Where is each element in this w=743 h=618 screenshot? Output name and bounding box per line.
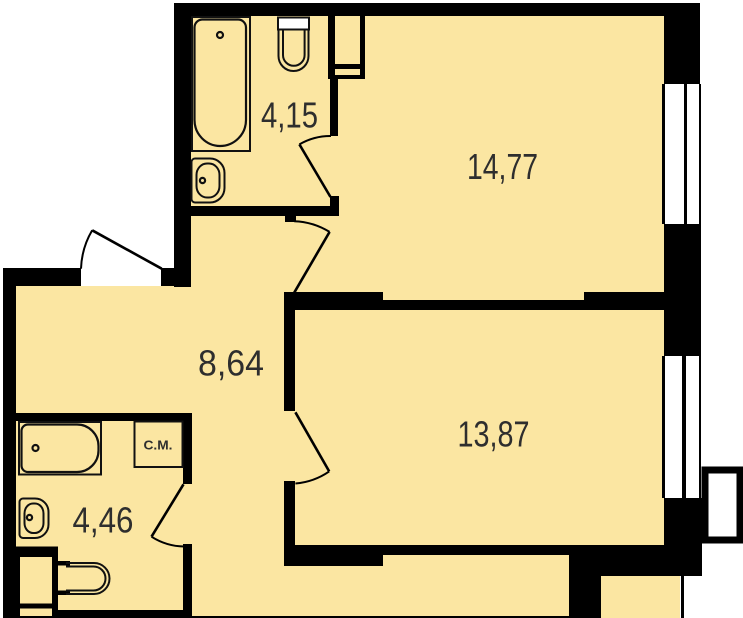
svg-text:13,87: 13,87 (458, 414, 530, 455)
svg-text:4,46: 4,46 (73, 500, 134, 541)
svg-text:14,77: 14,77 (467, 146, 538, 187)
svg-text:С.М.: С.М. (144, 438, 173, 453)
svg-text:4,15: 4,15 (261, 95, 318, 136)
svg-text:8,64: 8,64 (198, 343, 264, 384)
